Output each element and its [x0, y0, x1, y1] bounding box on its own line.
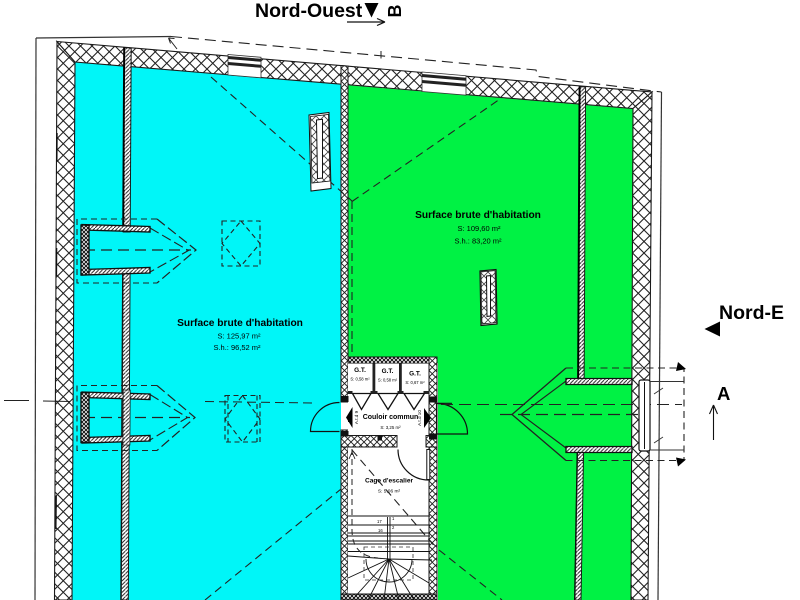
svg-text:S.h.: 83,20 m²: S.h.: 83,20 m² [454, 237, 502, 246]
svg-text:Surface brute d'habitation: Surface brute d'habitation [177, 318, 303, 329]
svg-text:S.h.: 96,52 m²: S.h.: 96,52 m² [213, 343, 261, 352]
svg-text:S: 125,97 m²: S: 125,97 m² [218, 332, 261, 341]
svg-text:A.t.d 9: A.t.d 9 [354, 410, 359, 424]
svg-text:16: 16 [378, 528, 383, 533]
svg-text:Nord-E: Nord-E [719, 302, 784, 324]
svg-text:G.T.: G.T. [354, 367, 366, 374]
svg-text:G.T.: G.T. [409, 371, 421, 378]
svg-text:17: 17 [377, 519, 382, 524]
svg-text:A: A [717, 383, 730, 404]
svg-text:S: 0,58 m²: S: 0,58 m² [350, 377, 370, 382]
svg-text:S: 0,67 m²: S: 0,67 m² [405, 380, 425, 385]
svg-text:Surface brute d'habitation: Surface brute d'habitation [415, 210, 541, 221]
svg-text:G.T.: G.T. [382, 368, 394, 375]
svg-text:S: 0,58 m²: S: 0,58 m² [378, 378, 398, 383]
svg-text:Couloir commun: Couloir commun [363, 414, 419, 421]
svg-text:S: 3,25 m²: S: 3,25 m² [380, 425, 401, 430]
svg-text:B: B [385, 5, 405, 18]
svg-text:Nord-Ouest: Nord-Ouest [255, 0, 363, 22]
svg-text:S: 5,06 m²: S: 5,06 m² [378, 489, 401, 495]
svg-text:S: 109,60 m²: S: 109,60 m² [458, 224, 501, 233]
svg-text:Cage d'escalier: Cage d'escalier [365, 478, 414, 485]
